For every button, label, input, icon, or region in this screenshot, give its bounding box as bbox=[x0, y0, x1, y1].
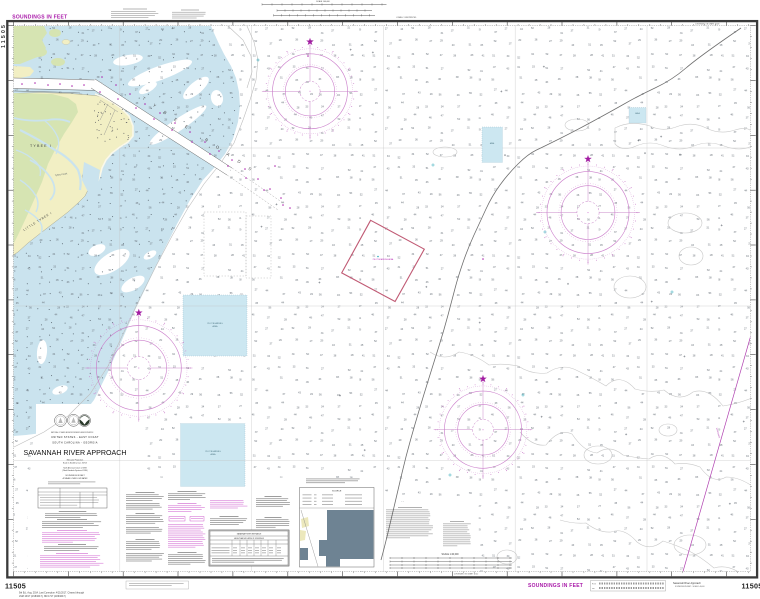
svg-text:PILOT BOARDING AREA: PILOT BOARDING AREA bbox=[373, 258, 394, 261]
svg-text:LORAN-C OVERPRINTED: LORAN-C OVERPRINTED bbox=[396, 16, 417, 19]
svg-text:SOUTH CAROLINA - GEORGIA: SOUTH CAROLINA - GEORGIA bbox=[52, 441, 98, 444]
svg-text:CONTINUED ON CHART 11512: CONTINUED ON CHART 11512 bbox=[454, 573, 478, 576]
svg-text:9th Ed., Aug. 2014. Last Corre: 9th Ed., Aug. 2014. Last Correction: 4/2… bbox=[19, 592, 85, 595]
svg-text:SAVANNAH RIVER APPROACH: SAVANNAH RIVER APPROACH bbox=[23, 449, 126, 457]
svg-text:PILOT BOARDING: PILOT BOARDING bbox=[205, 450, 221, 453]
svg-text:(World Geodetic System of 1984: (World Geodetic System of 1984) bbox=[63, 469, 88, 472]
svg-text:PILOT BOARDING: PILOT BOARDING bbox=[207, 322, 223, 325]
svg-text:P.O.S: P.O.S bbox=[592, 584, 596, 586]
svg-text:SCALE 1:40,000: SCALE 1:40,000 bbox=[316, 0, 329, 3]
svg-text:AREA: AREA bbox=[213, 325, 219, 328]
svg-text:SOUNDINGS IN FEET: SOUNDINGS IN FEET bbox=[12, 14, 67, 20]
svg-text:SAVANNAH RIVER ENTRANCE: SAVANNAH RIVER ENTRANCE bbox=[237, 533, 262, 536]
svg-text:SCALE 1:40,000: SCALE 1:40,000 bbox=[441, 553, 459, 556]
svg-text:SOUNDINGS IN FEET: SOUNDINGS IN FEET bbox=[65, 475, 85, 477]
svg-text:Savannah River Approach: Savannah River Approach bbox=[673, 582, 701, 585]
svg-text:11505: 11505 bbox=[5, 582, 26, 591]
svg-text:SOURCE: SOURCE bbox=[332, 491, 342, 493]
svg-text:11505: 11505 bbox=[1, 23, 7, 48]
svg-text:UNITED STATES - EAST COAST: UNITED STATES - EAST COAST bbox=[51, 436, 99, 439]
svg-text:Mercator Projection: Mercator Projection bbox=[67, 459, 83, 462]
svg-text:TYBEE I: TYBEE I bbox=[30, 144, 52, 148]
svg-text:SOUNDINGS IN FEET: SOUNDINGS IN FEET bbox=[528, 583, 583, 589]
svg-text:LNM 16/17 (4/18/2017), NM 1717: LNM 16/17 (4/18/2017), NM 1717 (4/29/201… bbox=[19, 596, 66, 598]
svg-text:CONTINUED ON CHART 11509: CONTINUED ON CHART 11509 bbox=[695, 22, 719, 25]
svg-text:AT MEAN LOWER LOW WATER: AT MEAN LOWER LOW WATER bbox=[63, 477, 88, 480]
svg-text:AREA: AREA bbox=[211, 453, 217, 456]
svg-text:11505: 11505 bbox=[742, 582, 760, 591]
svg-text:Scale 1:40,000 at Lat. 32°02': Scale 1:40,000 at Lat. 32°02' bbox=[63, 461, 88, 464]
